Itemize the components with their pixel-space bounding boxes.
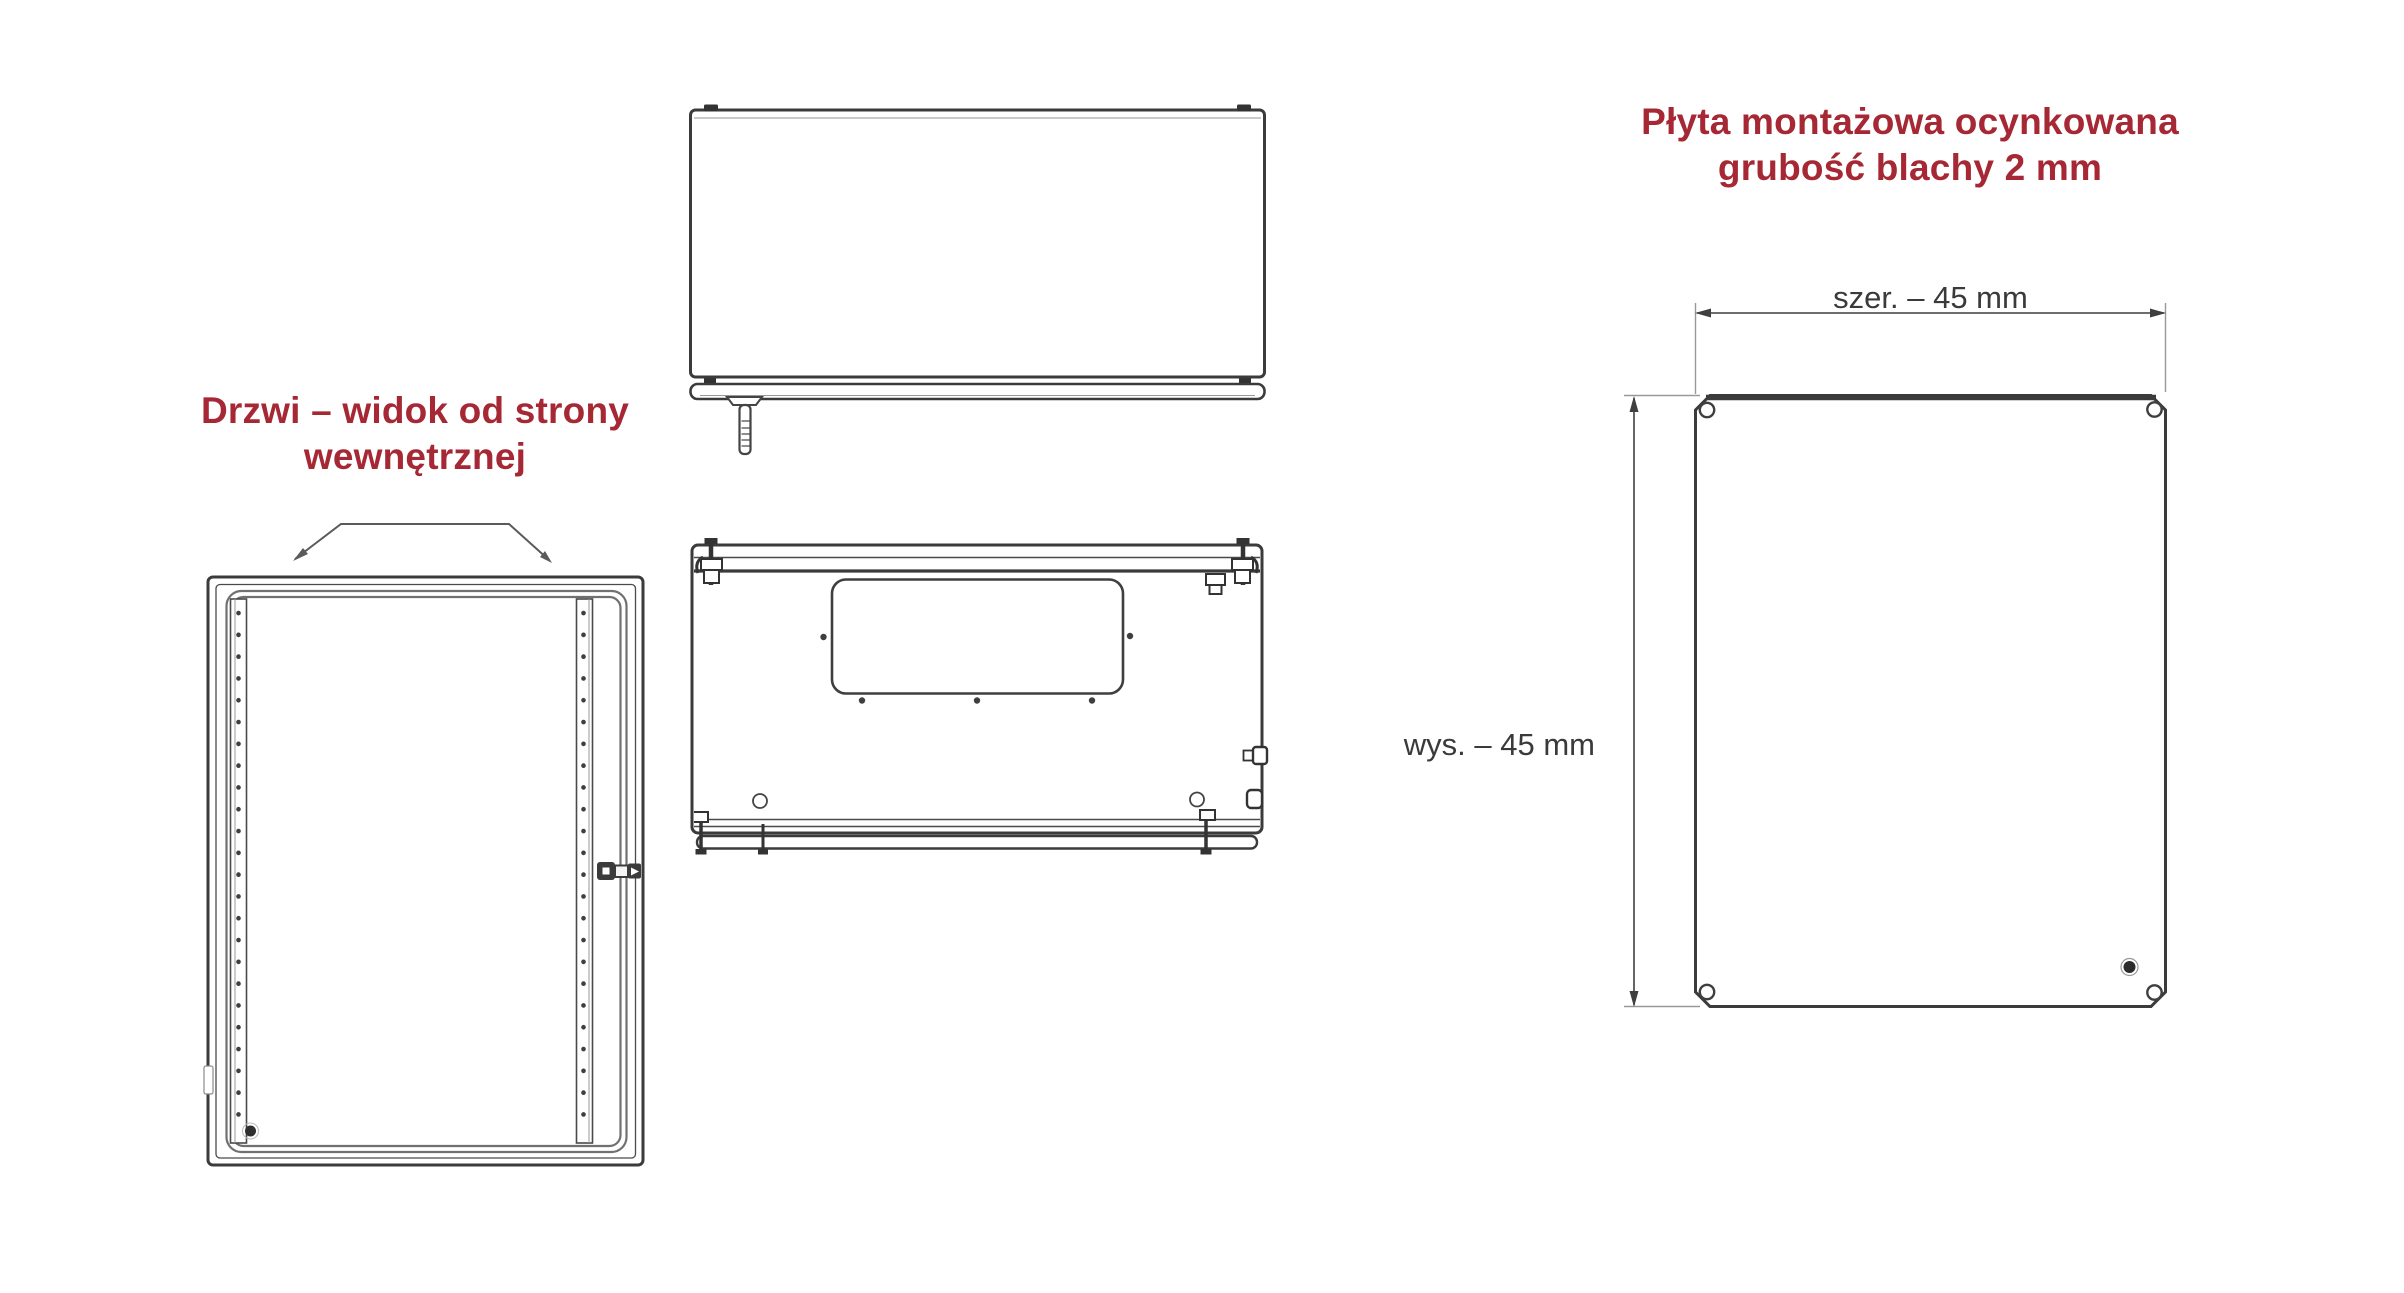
plate-height-dimension-label: wys. – 45 mm <box>1340 727 1595 763</box>
dim-arrowhead-bottom <box>1630 991 1639 1007</box>
cable-gland-cutout <box>832 580 1123 694</box>
mounting-plate-outline <box>1696 396 2166 1007</box>
dim-arrowhead-right <box>2150 309 2166 318</box>
door-leader-arrows <box>293 524 552 563</box>
plate-title-line-1: Płyta montażowa ocynkowana <box>1600 99 2220 145</box>
door-front-edge-strip <box>691 384 1265 399</box>
mounting-plate-drawing <box>1590 260 2230 1040</box>
plate-title-line-2: grubość blachy 2 mm <box>1600 145 2220 191</box>
door-hinge-notch <box>204 1066 213 1094</box>
door-view-title: Drzwi – widok od strony wewnętrznej <box>178 388 652 480</box>
enclosure-top-view-drawing <box>670 85 1290 480</box>
enclosure-rear-view-drawing <box>670 520 1290 865</box>
door-mounting-rail-left <box>231 599 247 1143</box>
door-title-line-2: wewnętrznej <box>178 434 652 480</box>
dim-arrowhead-left <box>1695 309 1711 318</box>
door-inner-view-drawing <box>180 500 690 1200</box>
height-dimension-line <box>1630 396 1639 1007</box>
lock-key-pin <box>727 397 762 454</box>
door-mounting-rail-right <box>577 599 593 1143</box>
enclosure-body-outline <box>691 110 1265 377</box>
technical-drawing-page: Drzwi – widok od strony wewnętrznej Płyt… <box>0 0 2404 1293</box>
width-dimension-line <box>1695 309 2166 318</box>
dim-arrowhead-top <box>1630 396 1639 412</box>
plate-grounding-stud <box>2121 959 2138 976</box>
plate-view-title: Płyta montażowa ocynkowana grubość blach… <box>1600 99 2220 191</box>
door-title-line-1: Drzwi – widok od strony <box>178 388 652 434</box>
door-latch-mechanism <box>597 862 641 880</box>
